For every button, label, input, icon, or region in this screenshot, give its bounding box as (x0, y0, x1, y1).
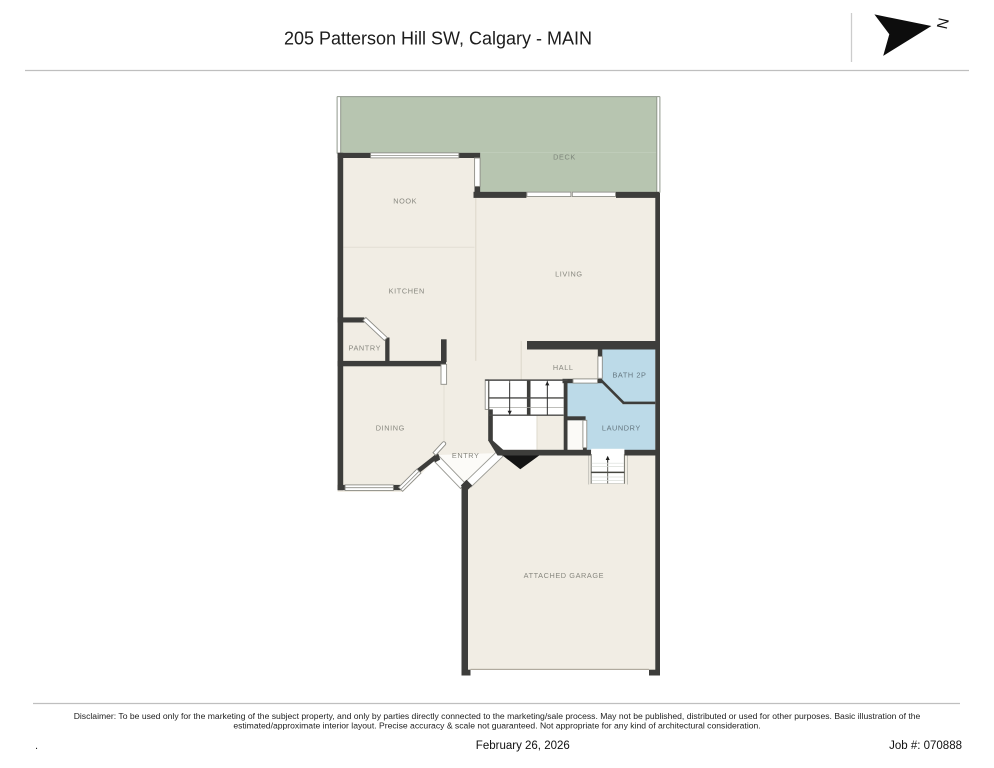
svg-text:February 26, 2026: February 26, 2026 (476, 740, 570, 752)
svg-text:KITCHEN: KITCHEN (389, 286, 425, 295)
svg-text:LAUNDRY: LAUNDRY (602, 424, 641, 433)
svg-text:.: . (35, 740, 38, 752)
svg-text:ENTRY: ENTRY (452, 451, 480, 460)
svg-text:NOOK: NOOK (393, 197, 417, 206)
svg-text:ATTACHED GARAGE: ATTACHED GARAGE (524, 571, 605, 580)
svg-text:Job #: 070888: Job #: 070888 (889, 740, 962, 752)
svg-text:DECK: DECK (553, 153, 576, 162)
svg-text:BATH 2P: BATH 2P (612, 371, 646, 380)
svg-text:DINING: DINING (376, 424, 405, 433)
svg-text:205 Patterson Hill SW, Calgary: 205 Patterson Hill SW, Calgary - MAIN (284, 29, 592, 49)
svg-text:HALL: HALL (553, 363, 574, 372)
svg-text:LIVING: LIVING (555, 269, 583, 278)
svg-text:PANTRY: PANTRY (349, 343, 382, 352)
svg-text:estimated/approximate interior: estimated/approximate interior layout. P… (233, 720, 760, 730)
